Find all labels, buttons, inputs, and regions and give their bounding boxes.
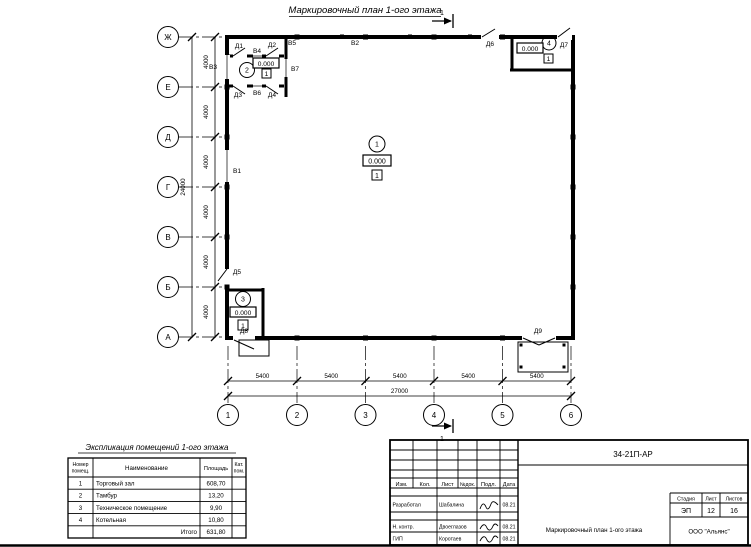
stamp-col: Подл. <box>481 482 497 488</box>
door-label: Д1 <box>235 43 243 50</box>
axis-row-label: В <box>165 233 170 242</box>
dim-5400: 5400 <box>256 373 270 380</box>
dim-5400: 5400 <box>324 373 338 380</box>
stamp-col: Изм. <box>396 482 408 488</box>
axis-row-label: Ж <box>164 33 172 42</box>
room-number: 1 <box>375 142 379 149</box>
signature <box>480 524 498 530</box>
dim-4000: 4000 <box>203 255 210 269</box>
doc-code: 34-21П-АР <box>613 450 653 459</box>
floor-type-mark: 1 <box>265 71 269 78</box>
sheets-header: Листов <box>726 497 743 503</box>
person-date: 08.21 <box>503 525 516 531</box>
window-label: В6 <box>253 90 261 97</box>
elevation-mark: 0.000 <box>522 46 539 53</box>
room-name: Котельная <box>96 517 126 524</box>
stage-value: ЭП <box>681 508 691 515</box>
person-name: Шабалина <box>439 503 464 509</box>
door-label: Д7 <box>560 42 568 49</box>
room-area: 10,80 <box>208 517 224 524</box>
stamp-doc-name: Маркировочный план 1-ого этажа <box>546 527 643 534</box>
room-name: Тамбур <box>96 493 118 500</box>
door-label: Д9 <box>534 328 542 335</box>
room-number: 2 <box>245 68 249 75</box>
col-header: Кат. <box>234 462 243 468</box>
room-marker-3: 3 0.000 1 <box>230 292 256 331</box>
total-area: 631,80 <box>207 529 226 536</box>
room-area: 13,20 <box>208 493 224 500</box>
floor-type-mark: 1 <box>375 173 379 180</box>
axis-row-label: Д <box>165 133 171 142</box>
dim-27000: 27000 <box>391 388 409 395</box>
wall-column-marks <box>225 35 576 341</box>
axis-col-label: 2 <box>295 411 300 420</box>
total-label: Итого <box>181 529 198 536</box>
floor-plan-drawing: Маркировочный план 1-ого этажа 1 Ж Е Д Г… <box>0 0 751 547</box>
room-marker-4: 4 0.000 1 <box>517 36 556 63</box>
stamp-col: Кол. <box>419 482 431 488</box>
person-date: 08.21 <box>503 537 516 543</box>
col-header: пом. <box>234 469 245 475</box>
room-num: 2 <box>79 493 83 500</box>
window-label: В3 <box>209 64 217 71</box>
title-block: Изм. Кол. Лист №док. Подл. Дата Разработ… <box>390 440 748 545</box>
dim-5400: 5400 <box>461 373 475 380</box>
drawing-sheet: Маркировочный план 1-ого этажа 1 Ж Е Д Г… <box>0 0 751 547</box>
room-num: 4 <box>79 517 83 524</box>
window-label: В7 <box>291 66 299 73</box>
dim-4000: 4000 <box>203 155 210 169</box>
dim-4000: 4000 <box>203 105 210 119</box>
axis-row-label: Г <box>166 183 171 192</box>
porches <box>239 340 568 372</box>
room-area: 9,90 <box>210 505 223 512</box>
room-num: 3 <box>79 505 83 512</box>
dim-5400: 5400 <box>530 373 544 380</box>
person-role: Разработал <box>393 503 421 509</box>
col-header: Площадь <box>204 466 228 472</box>
window-label: В1 <box>233 168 241 175</box>
signature <box>480 536 498 542</box>
door-label: Д2 <box>268 42 276 49</box>
axis-col-label: 3 <box>363 411 368 420</box>
walls <box>227 35 575 340</box>
person-name: Коротаев <box>439 537 462 543</box>
stamp-col: Лист <box>441 482 454 488</box>
room-marker-2: 2 0.000 1 <box>240 58 280 78</box>
explication-title: Экспликация помещений 1-ого этажа <box>86 443 229 452</box>
door-label: Д5 <box>233 269 241 276</box>
door-label: Д8 <box>240 328 248 335</box>
sheet-value: 12 <box>707 508 715 515</box>
person-name: Двоеглазов <box>439 525 467 531</box>
room-marker-1: 1 0.000 1 <box>363 136 391 180</box>
stage-header: Стадия <box>677 497 695 503</box>
window-label: В4 <box>253 48 261 55</box>
room-number: 3 <box>241 297 245 304</box>
dim-5400: 5400 <box>393 373 407 380</box>
room-name: Торговый зал <box>96 481 135 488</box>
axis-col-label: 1 <box>226 411 231 420</box>
person-date: 08.21 <box>503 503 516 509</box>
signature <box>480 502 498 509</box>
axis-row-label: Б <box>165 283 170 292</box>
room-num: 1 <box>79 481 83 488</box>
room-name: Техническое помещение <box>96 505 168 512</box>
col-header: Номер <box>73 462 89 468</box>
dim-4000: 4000 <box>203 205 210 219</box>
sheet-header: Лист <box>705 497 717 503</box>
door-label: Д6 <box>486 41 494 48</box>
dim-4000: 4000 <box>203 305 210 319</box>
door-label: Д4 <box>268 92 276 99</box>
door-label: Д3 <box>234 92 242 99</box>
dim-24000: 24000 <box>180 178 187 196</box>
plan-title: Маркировочный план 1-ого этажа <box>288 5 441 16</box>
axis-row-label: А <box>165 333 171 342</box>
person-role: ГИП <box>393 537 404 543</box>
window-label: В2 <box>351 40 359 47</box>
axis-col-label: 6 <box>569 411 574 420</box>
person-role: Н. контр. <box>393 525 414 531</box>
window-label: В5 <box>288 40 296 47</box>
floor-type-mark: 1 <box>547 56 551 63</box>
elevation-mark: 0.000 <box>258 61 275 68</box>
col-header: помещ. <box>72 469 90 475</box>
company-name: ООО "Альянс" <box>688 529 729 536</box>
elevation-mark: 0.000 <box>368 159 386 166</box>
sheets-value: 16 <box>730 508 738 515</box>
axis-row-label: Е <box>165 83 170 92</box>
axis-col-label: 4 <box>432 411 437 420</box>
elevation-mark: 0.000 <box>235 310 252 317</box>
section-mark-label: 1 <box>440 10 444 17</box>
stamp-col: №док. <box>460 482 475 488</box>
col-dimensions: 5400 5400 5400 5400 5400 27000 1 2 3 4 5… <box>218 346 582 426</box>
explication-table: Экспликация помещений 1-ого этажа Номер … <box>68 443 246 538</box>
room-area: 608,70 <box>207 481 226 488</box>
stamp-col: Дата <box>503 482 516 488</box>
col-header: Наименование <box>125 465 168 472</box>
axis-col-label: 5 <box>500 411 505 420</box>
room-number: 4 <box>547 41 551 48</box>
